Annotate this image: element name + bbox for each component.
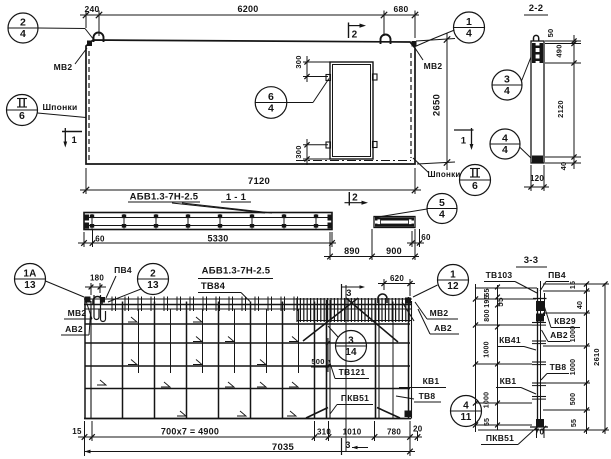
svg-text:МВ2: МВ2 — [424, 61, 443, 71]
svg-text:5: 5 — [439, 197, 445, 209]
svg-text:500: 500 — [311, 357, 324, 366]
svg-text:АБВ1.3-7Н-2.5: АБВ1.3-7Н-2.5 — [202, 266, 271, 277]
svg-text:300: 300 — [294, 55, 303, 68]
svg-text:КВ1: КВ1 — [423, 376, 440, 386]
svg-text:КВ41: КВ41 — [499, 335, 521, 345]
svg-text:3: 3 — [504, 74, 510, 86]
svg-text:60: 60 — [95, 235, 105, 244]
svg-text:1010: 1010 — [343, 428, 362, 437]
svg-text:11: 11 — [460, 412, 471, 423]
svg-text:2610: 2610 — [592, 348, 601, 366]
svg-text:15: 15 — [72, 427, 82, 436]
svg-text:2: 2 — [352, 193, 358, 204]
svg-text:1000: 1000 — [570, 326, 577, 343]
svg-text:60: 60 — [421, 233, 431, 242]
svg-text:4: 4 — [463, 401, 469, 412]
svg-text:40: 40 — [577, 301, 584, 309]
svg-text:2650: 2650 — [432, 94, 443, 116]
svg-text:2-2: 2-2 — [529, 3, 543, 14]
svg-text:ПВ4: ПВ4 — [114, 265, 132, 275]
svg-text:12: 12 — [447, 281, 459, 292]
svg-text:15: 15 — [570, 281, 577, 289]
svg-text:490: 490 — [555, 44, 564, 57]
svg-text:620: 620 — [390, 274, 404, 283]
svg-text:3: 3 — [345, 440, 350, 450]
svg-text:1: 1 — [72, 135, 78, 146]
svg-text:3-3: 3-3 — [524, 255, 538, 266]
svg-text:АВ2: АВ2 — [550, 330, 568, 340]
svg-text:120: 120 — [530, 174, 544, 183]
svg-text:ПВ4: ПВ4 — [548, 270, 566, 280]
svg-text:ПКВ51: ПКВ51 — [486, 433, 514, 443]
svg-text:1000: 1000 — [484, 341, 491, 358]
svg-text:3: 3 — [348, 336, 354, 347]
svg-text:2: 2 — [150, 269, 156, 280]
svg-text:ТВ8: ТВ8 — [550, 362, 567, 372]
svg-text:1000: 1000 — [484, 392, 491, 409]
svg-text:900: 900 — [386, 246, 402, 256]
svg-text:6: 6 — [19, 110, 25, 122]
svg-text:55: 55 — [496, 297, 505, 307]
svg-text:20: 20 — [413, 425, 423, 434]
svg-text:МВ2: МВ2 — [68, 308, 87, 318]
svg-text:ПКВ51: ПКВ51 — [341, 393, 369, 403]
svg-text:1: 1 — [461, 136, 467, 147]
svg-text:700х7 = 4900: 700х7 = 4900 — [161, 427, 219, 437]
svg-text:780: 780 — [387, 428, 401, 437]
svg-text:ТВ103: ТВ103 — [486, 270, 513, 280]
svg-text:ТВ121: ТВ121 — [339, 367, 366, 377]
svg-text:14: 14 — [345, 347, 357, 358]
svg-text:4: 4 — [502, 133, 508, 145]
svg-text:2: 2 — [352, 30, 358, 41]
svg-text:500: 500 — [570, 393, 577, 405]
svg-text:1: 1 — [466, 16, 472, 28]
svg-text:4: 4 — [502, 144, 508, 156]
svg-text:40: 40 — [559, 162, 568, 171]
svg-text:13: 13 — [24, 280, 36, 291]
svg-text:4: 4 — [20, 28, 26, 40]
svg-text:АВ2: АВ2 — [434, 323, 452, 333]
svg-text:МВ2: МВ2 — [54, 62, 73, 72]
svg-text:180: 180 — [90, 274, 104, 283]
svg-text:1А: 1А — [23, 269, 36, 280]
svg-text:МВ2: МВ2 — [430, 308, 449, 318]
svg-text:1 - 1: 1 - 1 — [226, 192, 247, 203]
svg-text:6200: 6200 — [237, 4, 258, 14]
svg-text:4: 4 — [268, 103, 274, 115]
svg-text:310: 310 — [317, 428, 331, 437]
svg-text:3: 3 — [346, 288, 351, 298]
svg-text:50: 50 — [546, 29, 555, 38]
svg-text:70: 70 — [535, 428, 545, 437]
svg-text:АВ2: АВ2 — [65, 324, 83, 334]
svg-text:13: 13 — [147, 280, 159, 291]
svg-text:5330: 5330 — [207, 234, 228, 244]
svg-text:1000: 1000 — [570, 359, 577, 376]
svg-text:7035: 7035 — [272, 442, 295, 453]
svg-text:240: 240 — [85, 4, 100, 14]
svg-text:4: 4 — [466, 28, 472, 40]
svg-text:4: 4 — [439, 209, 445, 221]
svg-text:195: 195 — [484, 295, 491, 307]
svg-text:680: 680 — [394, 4, 409, 14]
svg-text:800: 800 — [484, 309, 491, 321]
svg-text:1: 1 — [450, 270, 456, 281]
svg-text:6: 6 — [472, 180, 478, 192]
svg-text:4: 4 — [504, 85, 510, 97]
svg-text:ТВ8: ТВ8 — [419, 391, 436, 401]
svg-text:КВ29: КВ29 — [554, 316, 576, 326]
svg-text:КВ1: КВ1 — [500, 376, 517, 386]
svg-text:7120: 7120 — [248, 176, 270, 187]
svg-text:55: 55 — [571, 419, 578, 427]
svg-text:Шпонки: Шпонки — [427, 170, 460, 179]
svg-text:ТВ84: ТВ84 — [201, 281, 226, 292]
svg-text:300: 300 — [294, 145, 303, 158]
svg-text:АБВ1.3-7Н-2.5: АБВ1.3-7Н-2.5 — [130, 192, 199, 203]
svg-text:2120: 2120 — [556, 100, 565, 118]
svg-text:890: 890 — [344, 246, 360, 256]
svg-text:2: 2 — [20, 17, 26, 29]
svg-text:Шпонки: Шпонки — [43, 102, 78, 112]
svg-text:6: 6 — [268, 91, 274, 103]
